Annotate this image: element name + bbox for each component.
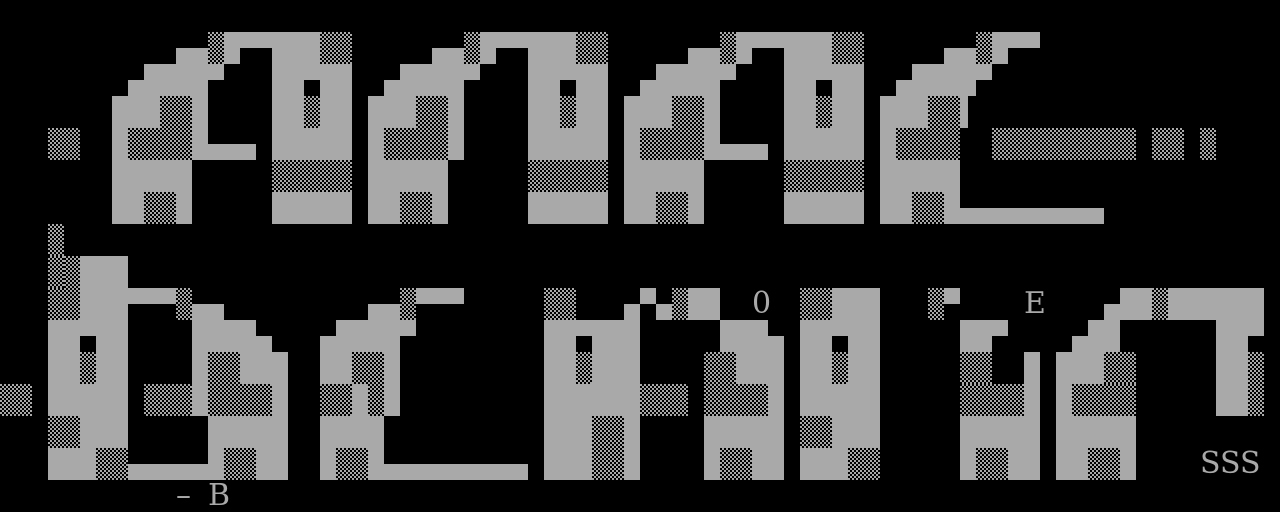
art-cell [816,64,832,96]
art-cell [832,384,848,416]
art-cell [752,128,768,160]
art-cell [656,384,672,416]
art-cell [240,416,256,448]
art-cell [384,64,400,96]
art-cell [688,288,704,320]
art-cell [336,192,352,224]
art-cell [352,352,368,384]
art-cell [1024,192,1040,224]
art-cell [544,32,560,64]
art-cell [592,384,608,416]
art-cell [336,32,352,64]
art-cell [208,320,224,352]
art-cell [1200,288,1216,320]
art-cell [880,96,896,128]
art-cell [320,320,336,352]
art-cell [1024,416,1040,448]
art-cell [288,160,304,192]
art-cell [544,128,560,160]
art-cell [128,64,144,96]
ansi-art-screen: 0ESSS–B [0,0,1280,512]
art-cell [656,64,672,96]
art-cell [576,32,592,64]
art-cell [1040,128,1056,160]
art-cell [256,352,272,384]
art-cell [544,320,560,352]
art-cell [48,224,64,256]
art-cell [768,384,784,416]
art-cell [1120,384,1136,416]
art-cell [848,192,864,224]
art-cell [832,128,848,160]
art-cell [816,160,832,192]
art-cell [160,288,176,320]
art-cell [144,448,160,480]
art-cell [1184,288,1200,320]
art-cell [752,416,768,448]
art-cell [1120,128,1136,160]
art-cell [704,448,720,480]
art-cell [576,352,592,384]
art-cell [320,128,336,160]
art-cell [992,128,1008,160]
art-cell [592,320,608,352]
art-cell [1168,288,1184,320]
art-cell [960,32,976,64]
art-cell [1072,384,1088,416]
art-cell [1040,192,1056,224]
art-cell [224,448,240,480]
art-cell [304,32,320,64]
art-cell [624,96,640,128]
art-cell [336,416,352,448]
art-cell [880,160,896,192]
art-cell [848,96,864,128]
art-cell [560,96,576,128]
art-cell [1216,384,1232,416]
art-cell [464,64,480,96]
art-cell [240,352,256,384]
art-cell [1248,352,1264,384]
art-cell [1056,352,1072,384]
art-cell [544,384,560,416]
art-text: SSS [1200,448,1248,480]
art-cell [160,128,176,160]
art-cell [1056,192,1072,224]
art-cell [752,448,768,480]
art-cell [272,416,288,448]
art-cell [800,352,816,384]
art-cell [736,384,752,416]
art-cell [848,32,864,64]
art-cell [560,64,576,96]
art-cell [752,352,768,384]
art-cell [320,448,336,480]
art-cell [112,96,128,128]
art-cell [672,64,688,96]
art-cell [608,416,624,448]
art-cell [48,256,64,288]
art-cell [928,288,944,320]
art-cell [96,384,112,416]
art-cell [48,352,64,384]
art-cell [368,288,384,320]
art-cell [80,288,96,320]
art-cell [672,384,688,416]
art-cell [912,96,928,128]
art-cell [240,448,256,480]
art-cell [1024,128,1040,160]
art-cell [864,448,880,480]
art-cell [448,96,464,128]
art-cell [816,384,832,416]
art-cell [576,160,592,192]
art-cell [848,160,864,192]
art-cell [96,416,112,448]
art-cell [800,448,816,480]
art-cell [208,416,224,448]
art-cell [400,128,416,160]
art-cell [176,64,192,96]
art-cell [272,64,288,96]
art-cell [832,160,848,192]
art-cell [528,32,544,64]
art-cell [416,64,432,96]
art-cell [80,256,96,288]
art-cell [944,288,960,320]
art-cell [800,32,816,64]
art-cell [144,96,160,128]
art-cell [624,192,640,224]
art-cell [384,96,400,128]
art-cell [48,448,64,480]
art-cell [400,160,416,192]
art-cell [960,416,976,448]
art-cell [736,320,752,352]
art-cell [960,96,976,128]
art-cell [432,448,448,480]
art-cell [192,320,208,352]
art-cell [1216,352,1232,384]
art-cell [576,416,592,448]
art-cell [192,96,208,128]
art-cell [864,288,880,320]
art-cell [800,288,816,320]
art-cell [560,320,576,352]
art-cell [400,320,416,352]
art-cell [384,192,400,224]
art-cell [736,128,752,160]
art-cell [912,128,928,160]
art-cell [944,96,960,128]
art-cell [896,96,912,128]
art-cell [48,288,64,320]
art-cell [576,96,592,128]
art-cell [1200,128,1216,160]
art-cell [848,384,864,416]
art-cell [144,288,160,320]
art-cell [320,64,336,96]
art-cell [160,64,176,96]
art-cell [304,128,320,160]
art-cell [992,448,1008,480]
art-cell [64,128,80,160]
art-cell [320,384,336,416]
art-cell [1008,192,1024,224]
art-cell [48,384,64,416]
art-cell [400,192,416,224]
art-cell [960,448,976,480]
art-cell [576,384,592,416]
art-cell [320,416,336,448]
art-cell [1072,320,1088,352]
art-cell [208,384,224,416]
art-cell [816,192,832,224]
art-cell [1104,416,1120,448]
art-cell [432,288,448,320]
art-cell [176,384,192,416]
art-cell [480,32,496,64]
art-cell [704,96,720,128]
art-text: – [176,480,192,512]
art-cell [448,64,464,96]
art-cell [176,32,192,64]
art-cell [784,32,800,64]
art-cell [560,448,576,480]
art-cell [960,192,976,224]
art-cell [976,192,992,224]
art-cell [800,384,816,416]
art-cell [624,448,640,480]
art-cell [320,32,336,64]
art-cell [1232,320,1248,352]
art-cell [144,192,160,224]
art-cell [1008,128,1024,160]
art-cell [208,64,224,96]
art-cell [128,192,144,224]
art-cell [256,384,272,416]
art-cell [672,160,688,192]
art-cell [1120,416,1136,448]
art-cell [448,128,464,160]
art-cell [320,96,336,128]
art-cell [896,160,912,192]
art-cell [688,128,704,160]
art-cell [736,352,752,384]
art-cell [624,128,640,160]
art-cell [272,384,288,416]
art-cell [928,192,944,224]
art-cell [768,416,784,448]
art-cell [592,448,608,480]
art-cell [400,96,416,128]
art-cell [976,64,992,96]
art-cell [368,416,384,448]
art-cell [896,192,912,224]
art-cell [528,96,544,128]
art-cell [368,192,384,224]
art-cell [704,128,720,160]
art-cell [0,384,16,416]
art-cell [864,384,880,416]
art-cell [112,192,128,224]
art-cell [1088,384,1104,416]
art-cell [912,192,928,224]
art-cell [1072,448,1088,480]
art-cell [416,448,432,480]
art-cell [176,448,192,480]
art-cell [288,64,304,96]
art-cell [592,352,608,384]
art-cell [704,64,720,96]
art-cell [160,160,176,192]
art-cell [672,96,688,128]
art-cell [1072,192,1088,224]
art-cell [384,288,400,320]
art-cell [144,384,160,416]
art-cell [912,160,928,192]
art-cell [304,192,320,224]
art-cell [416,128,432,160]
art-cell [608,320,624,352]
art-cell [144,128,160,160]
art-cell [1008,32,1024,64]
art-cell [48,416,64,448]
art-cell [288,96,304,128]
art-cell [720,384,736,416]
art-cell [192,384,208,416]
art-cell [592,96,608,128]
art-cell [720,448,736,480]
art-cell [592,160,608,192]
art-cell [992,320,1008,352]
art-cell [416,192,432,224]
art-cell [928,64,944,96]
art-cell [624,352,640,384]
art-cell [752,32,768,64]
art-cell [928,128,944,160]
art-cell [416,160,432,192]
art-cell [192,288,208,320]
art-text: E [1024,288,1040,320]
art-cell [240,128,256,160]
art-cell [768,32,784,64]
art-cell [992,384,1008,416]
art-cell [848,128,864,160]
art-cell [368,320,384,352]
art-cell [304,64,320,96]
art-cell [784,96,800,128]
art-cell [1168,128,1184,160]
art-cell [800,160,816,192]
art-cell [976,384,992,416]
art-cell [864,416,880,448]
art-cell [1104,352,1120,384]
art-cell [272,128,288,160]
art-cell [1152,128,1168,160]
art-cell [832,320,848,352]
art-cell [816,352,832,384]
art-cell [656,288,672,320]
art-cell [848,448,864,480]
art-cell [928,160,944,192]
art-cell [560,160,576,192]
art-cell [736,448,752,480]
art-cell [592,128,608,160]
art-cell [1088,416,1104,448]
art-cell [944,192,960,224]
art-cell [512,32,528,64]
art-cell [640,288,656,320]
art-cell [800,128,816,160]
art-cell [576,320,592,352]
art-cell [64,256,80,288]
art-cell [112,416,128,448]
art-cell [720,32,736,64]
art-cell [544,288,560,320]
art-text: B [208,480,224,512]
art-cell [576,128,592,160]
art-cell [1248,288,1264,320]
art-cell [384,128,400,160]
art-cell [320,160,336,192]
art-cell [224,320,240,352]
art-cell [1248,384,1264,416]
art-cell [1232,288,1248,320]
art-cell [1008,448,1024,480]
art-cell [752,384,768,416]
art-cell [128,128,144,160]
art-cell [656,192,672,224]
art-cell [848,416,864,448]
art-cell [832,416,848,448]
art-cell [944,160,960,192]
art-cell [624,416,640,448]
art-cell [864,352,880,384]
art-cell [624,384,640,416]
art-cell [576,448,592,480]
art-cell [528,64,544,96]
art-cell [416,288,432,320]
art-cell [112,384,128,416]
art-cell [1232,384,1248,416]
art-cell [336,160,352,192]
art-cell [560,384,576,416]
art-cell [336,320,352,352]
art-cell [160,384,176,416]
art-cell [1232,352,1248,384]
art-cell [976,320,992,352]
art-cell [80,320,96,352]
art-cell [784,192,800,224]
art-cell [192,32,208,64]
art-cell [432,192,448,224]
art-cell [640,192,656,224]
art-cell [864,320,880,352]
art-cell [176,128,192,160]
art-cell [352,384,368,416]
art-cell [816,128,832,160]
art-cell [656,96,672,128]
art-cell [272,192,288,224]
art-cell [784,128,800,160]
art-cell [384,448,400,480]
art-cell [1104,320,1120,352]
art-cell [464,32,480,64]
art-cell [480,448,496,480]
art-cell [1072,352,1088,384]
art-cell [1088,320,1104,352]
